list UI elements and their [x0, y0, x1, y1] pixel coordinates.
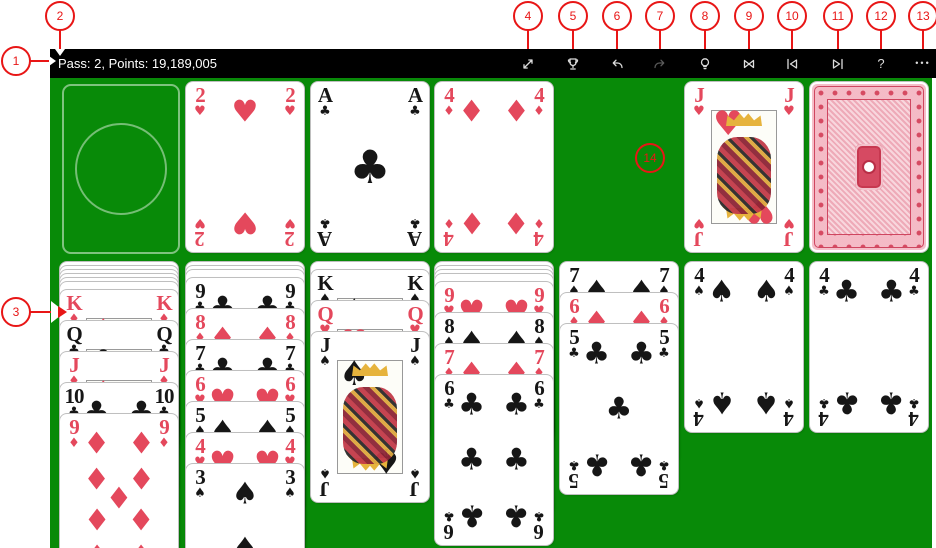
- tableau-1-card-9-diamonds[interactable]: 9♦9♦9♦9♦♦♦♦♦♦♦♦♦♦: [60, 414, 178, 548]
- hint-lightbulb-icon: [697, 56, 713, 72]
- redo-button[interactable]: [647, 51, 673, 76]
- card-index: J♠: [404, 466, 426, 499]
- skip-to-end-button[interactable]: [825, 51, 851, 76]
- status-text: Pass: 2, Points: 19,189,005: [58, 49, 217, 78]
- callout-line-11: [837, 29, 839, 49]
- crown-art: [352, 362, 388, 376]
- awards-trophy-button[interactable]: [560, 51, 586, 76]
- callout-line-8: [704, 29, 706, 49]
- annotated-solitaire-screenshot: Pass: 2, Points: 19,189,005 ?••• 2♥2♥2♥2…: [0, 0, 936, 548]
- callout-line-13: [922, 29, 924, 49]
- new-deal-icon: [741, 56, 757, 72]
- crown-art: [726, 112, 762, 126]
- skip-to-start-button[interactable]: [779, 51, 805, 76]
- card-index: 3♠: [189, 467, 211, 500]
- callout-line-1: [29, 60, 49, 62]
- card-index: 4♠: [778, 396, 800, 429]
- callout-line-4: [527, 29, 529, 49]
- card-index: 6♣: [528, 378, 550, 411]
- undo-button[interactable]: [604, 51, 630, 76]
- card-index: 2♥: [189, 216, 211, 249]
- card-index: J♠: [404, 335, 426, 368]
- callout-line-9: [748, 29, 750, 49]
- callout-2: 2: [45, 1, 75, 31]
- card-index: J♠: [314, 466, 336, 499]
- card-index: 2♥: [189, 85, 211, 118]
- face-card-art: ♠♠: [337, 360, 403, 474]
- skip-to-start-icon: [784, 56, 800, 72]
- callout-8: 8: [690, 1, 720, 31]
- redo-icon: [652, 56, 668, 72]
- callout-13: 13: [908, 1, 936, 31]
- card-index: 3♠: [279, 467, 301, 500]
- tableau-7-card-4-clubs[interactable]: 4♣4♣4♣4♣♣♣♣♣: [810, 262, 928, 432]
- card-index: 6♣: [438, 509, 460, 542]
- callout-line-7: [659, 29, 661, 49]
- crown-art: [726, 208, 762, 222]
- tableau-4-card-6-clubs[interactable]: 6♣6♣6♣6♣♣♣♣♣♣♣: [435, 375, 553, 545]
- tableau-2-card-3-spades[interactable]: 3♠3♠3♠3♠♠♠♠: [186, 464, 304, 548]
- foundation-card-A-clubs[interactable]: A♣A♣A♣A♣♣: [311, 82, 429, 252]
- card-index: J♥: [688, 85, 710, 118]
- callout-5: 5: [558, 1, 588, 31]
- card-index: 6♣: [438, 378, 460, 411]
- callout-10: 10: [777, 1, 807, 31]
- callout-9: 9: [734, 1, 764, 31]
- waste-card-J-hearts[interactable]: J♥J♥J♥J♥♥♥: [685, 82, 803, 252]
- card-index: 4♦: [438, 85, 460, 118]
- callout-11: 11: [823, 1, 853, 31]
- tableau-3-card-J-spades[interactable]: J♠J♠J♠J♠♠♠: [311, 332, 429, 502]
- card-index: 4♣: [813, 265, 835, 298]
- foundation-card-2-hearts[interactable]: 2♥2♥2♥2♥♥♥: [186, 82, 304, 252]
- hint-lightbulb-button[interactable]: [692, 51, 718, 76]
- foundation-circle-mark: [75, 123, 167, 215]
- card-index: 9♦: [153, 417, 175, 450]
- royal-figure-art: [343, 387, 397, 464]
- card-index: A♣: [314, 216, 336, 249]
- card-index: 4♦: [528, 216, 550, 249]
- skip-to-end-icon: [830, 56, 846, 72]
- card-index: A♣: [404, 216, 426, 249]
- awards-trophy-icon: [565, 56, 581, 72]
- foundation-slot-empty[interactable]: [62, 84, 180, 254]
- card-index: 5♣: [563, 458, 585, 491]
- tableau-5-card-5-clubs[interactable]: 5♣5♣5♣5♣♣♣♣♣♣: [560, 324, 678, 494]
- exit-fullscreen-icon: [520, 56, 536, 72]
- game-board: 2♥2♥2♥2♥♥♥A♣A♣A♣A♣♣4♦4♦4♦4♦♦♦♦♦J♥J♥J♥J♥♥…: [50, 78, 932, 548]
- tableau-6-card-4-spades[interactable]: 4♠4♠4♠4♠♠♠♠♠: [685, 262, 803, 432]
- right-margin: [932, 78, 936, 548]
- card-index: 6♣: [528, 509, 550, 542]
- foundation-card-4-diamonds[interactable]: 4♦4♦4♦4♦♦♦♦♦: [435, 82, 553, 252]
- title-bar: Pass: 2, Points: 19,189,005 ?•••: [50, 49, 936, 78]
- card-index: J♥: [688, 216, 710, 249]
- card-index: 4♦: [528, 85, 550, 118]
- callout-line-5: [572, 29, 574, 49]
- card-index: 5♣: [653, 458, 675, 491]
- card-index: 4♠: [778, 265, 800, 298]
- callout-12: 12: [866, 1, 896, 31]
- card-index: 2♥: [279, 85, 301, 118]
- card-index: 4♣: [813, 396, 835, 429]
- card-index: J♠: [314, 335, 336, 368]
- callout-line-2: [59, 29, 61, 49]
- card-index: 2♥: [279, 216, 301, 249]
- callout-line-6: [616, 29, 618, 49]
- callout-line-12: [880, 29, 882, 49]
- callout-line-10: [791, 29, 793, 49]
- help-button[interactable]: ?: [868, 51, 894, 76]
- card-index: 5♣: [563, 327, 585, 360]
- new-deal-button[interactable]: [736, 51, 762, 76]
- card-back-medallion: [855, 144, 883, 190]
- card-index: J♥: [778, 85, 800, 118]
- card-index: 4♠: [688, 265, 710, 298]
- undo-icon: [609, 56, 625, 72]
- callout-6: 6: [602, 1, 632, 31]
- card-index: 4♦: [438, 216, 460, 249]
- more-options-button[interactable]: •••: [910, 51, 936, 76]
- card-index: A♣: [314, 85, 336, 118]
- card-index: 9♦: [63, 417, 85, 450]
- help-icon: ?: [877, 57, 884, 70]
- royal-figure-art: [717, 137, 771, 214]
- card-index: A♣: [404, 85, 426, 118]
- callout-4: 4: [513, 1, 543, 31]
- card-index: 4♣: [903, 396, 925, 429]
- callout-1: 1: [1, 46, 31, 76]
- exit-fullscreen-button[interactable]: [515, 51, 541, 76]
- stock-pile-face-down[interactable]: [810, 82, 928, 252]
- callout-7: 7: [645, 1, 675, 31]
- card-index: 5♣: [653, 327, 675, 360]
- callout-3: 3: [1, 297, 31, 327]
- face-card-art: ♥♥: [711, 110, 777, 224]
- card-index: J♥: [778, 216, 800, 249]
- card-index: 4♠: [688, 396, 710, 429]
- crown-art: [352, 458, 388, 472]
- card-index: 4♣: [903, 265, 925, 298]
- more-options-icon: •••: [915, 59, 930, 68]
